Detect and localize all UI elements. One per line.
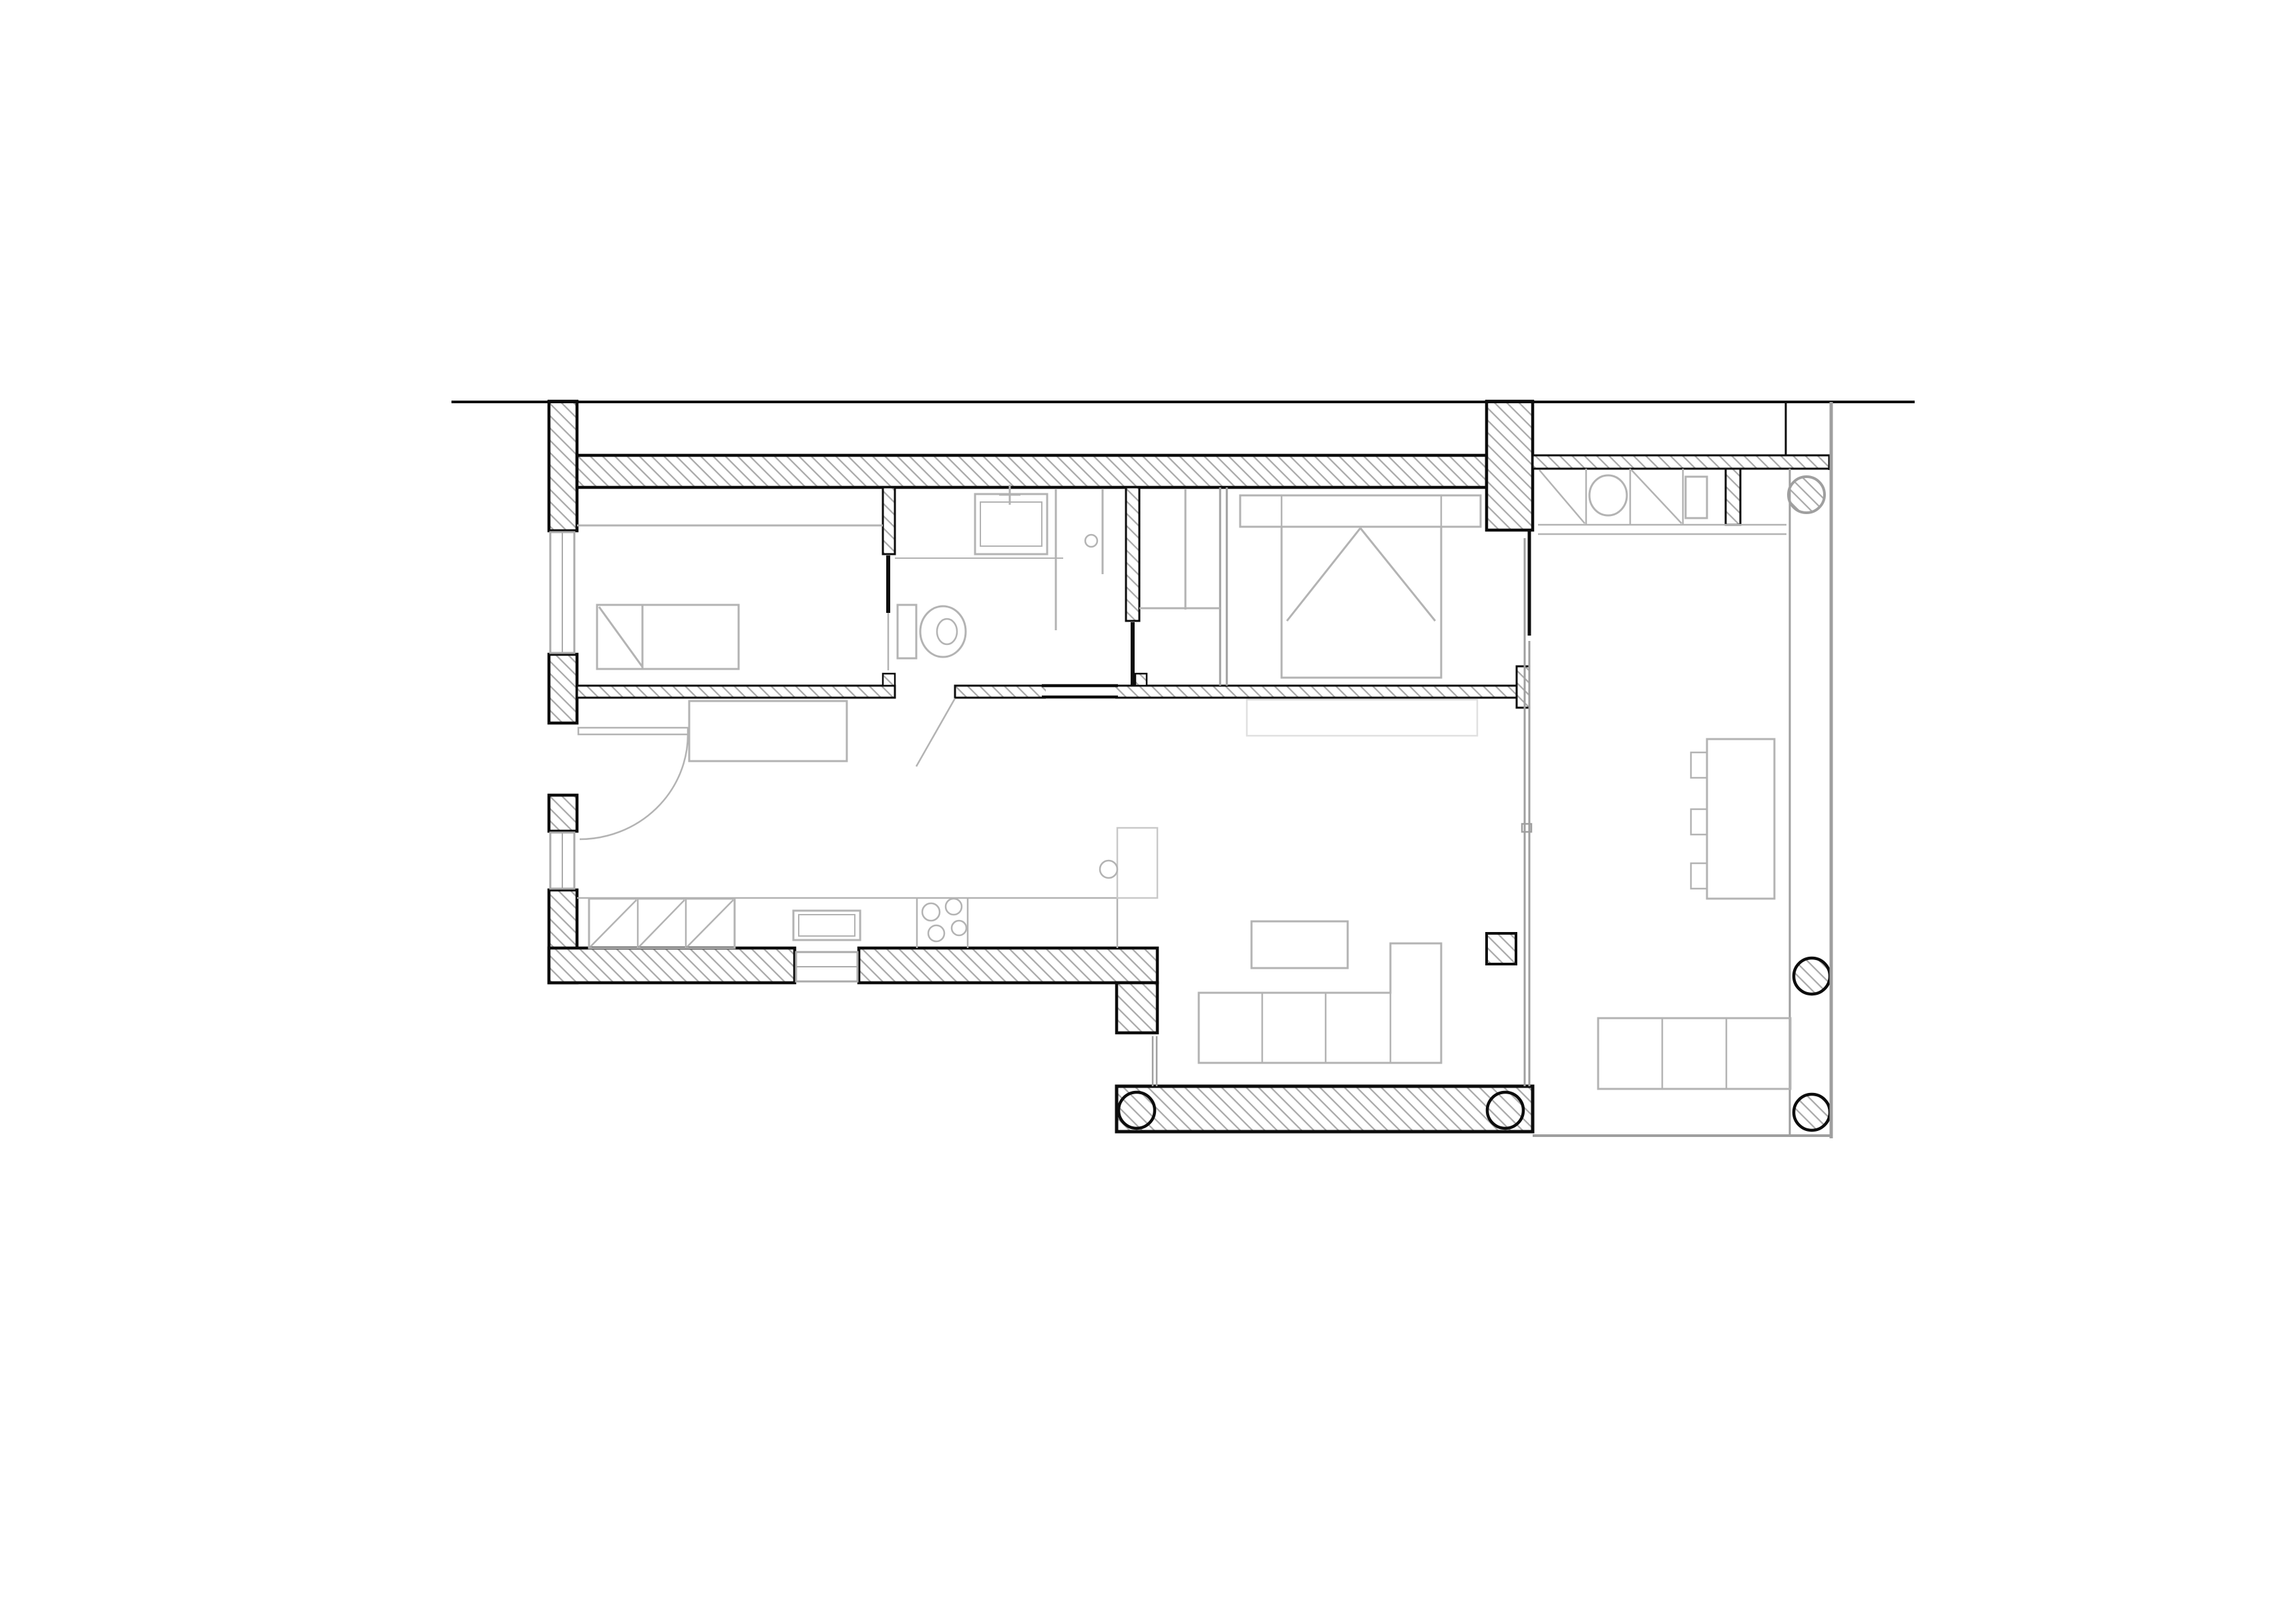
burner-3 <box>928 925 944 941</box>
bed1-pillow-diagonal <box>599 607 642 667</box>
media-cabinet <box>1247 700 1477 736</box>
entry-column <box>1487 401 1533 530</box>
partition-bed1-notch <box>883 674 895 686</box>
top-exterior-wall <box>577 455 1487 487</box>
kitchen-plant <box>1100 861 1117 878</box>
utility-wall-leg <box>1726 469 1740 525</box>
floor-plan-drawing <box>0 0 2296 1609</box>
burner-1 <box>922 903 940 921</box>
island-stool-1 <box>1691 752 1707 778</box>
toilet-bowl <box>920 606 966 657</box>
sofa-outline <box>1199 943 1441 1063</box>
left-wall-upper <box>549 401 577 531</box>
bed2-blanket-left <box>1287 528 1360 621</box>
bed1 <box>597 605 739 669</box>
toilet-bowl-inner <box>937 619 957 644</box>
bath-sink-cabinet <box>975 494 1047 554</box>
partition-end-cap <box>1517 666 1529 708</box>
toilet-tank <box>898 605 916 658</box>
bed2-blanket-right <box>1360 528 1435 621</box>
shower-drain <box>1085 535 1097 547</box>
entry-door-swing <box>580 734 688 839</box>
washing-machine <box>1589 475 1627 515</box>
partition-living <box>955 686 1517 698</box>
bath-sink-basin <box>980 502 1042 546</box>
column-slab-left <box>1119 1092 1155 1128</box>
closet-diagonal-1 <box>1539 470 1585 523</box>
tall-cabinet <box>1117 828 1157 898</box>
bed2 <box>1282 527 1441 678</box>
left-wall-mid-2 <box>549 795 577 831</box>
island-stool-2 <box>1691 809 1707 835</box>
bath-wall-left <box>883 487 895 554</box>
bath-wall-right <box>1126 487 1139 621</box>
coffee-table <box>1252 921 1348 968</box>
closet-diagonal-2 <box>1632 470 1682 523</box>
cell-diagonal-2 <box>639 900 685 947</box>
burner-4 <box>952 921 966 935</box>
step-wall <box>1117 983 1157 1033</box>
terrace-bench <box>1598 1018 1790 1089</box>
left-wall-mid-1 <box>549 654 577 723</box>
partition-bed1 <box>577 686 895 698</box>
utility-wall-top <box>1533 455 1831 469</box>
utility-boiler <box>1686 477 1707 518</box>
bed2-headboard-row <box>1240 495 1481 527</box>
kitchen-island <box>1707 739 1774 899</box>
floor-plan-page <box>0 0 2296 1609</box>
kitchen-sink-inner <box>799 915 855 936</box>
living-pillar <box>1487 933 1516 964</box>
cell-diagonal-3 <box>687 900 733 947</box>
terrace-slab <box>1117 1086 1533 1132</box>
entry-door-leaf <box>578 728 688 734</box>
burner-2 <box>946 899 962 915</box>
partition-living-notch <box>1135 674 1147 686</box>
bottom-wall-left <box>549 948 795 983</box>
hall-closet <box>689 701 847 761</box>
column-slab-right <box>1487 1092 1523 1128</box>
bath-door-leaf <box>916 698 955 766</box>
cell-diagonal-1 <box>590 900 636 947</box>
island-stool-3 <box>1691 863 1707 889</box>
column-top-right <box>1788 477 1825 513</box>
bottom-wall-right <box>859 948 1157 983</box>
column-terrace-mid <box>1794 958 1830 994</box>
column-terrace-corner <box>1794 1094 1830 1130</box>
